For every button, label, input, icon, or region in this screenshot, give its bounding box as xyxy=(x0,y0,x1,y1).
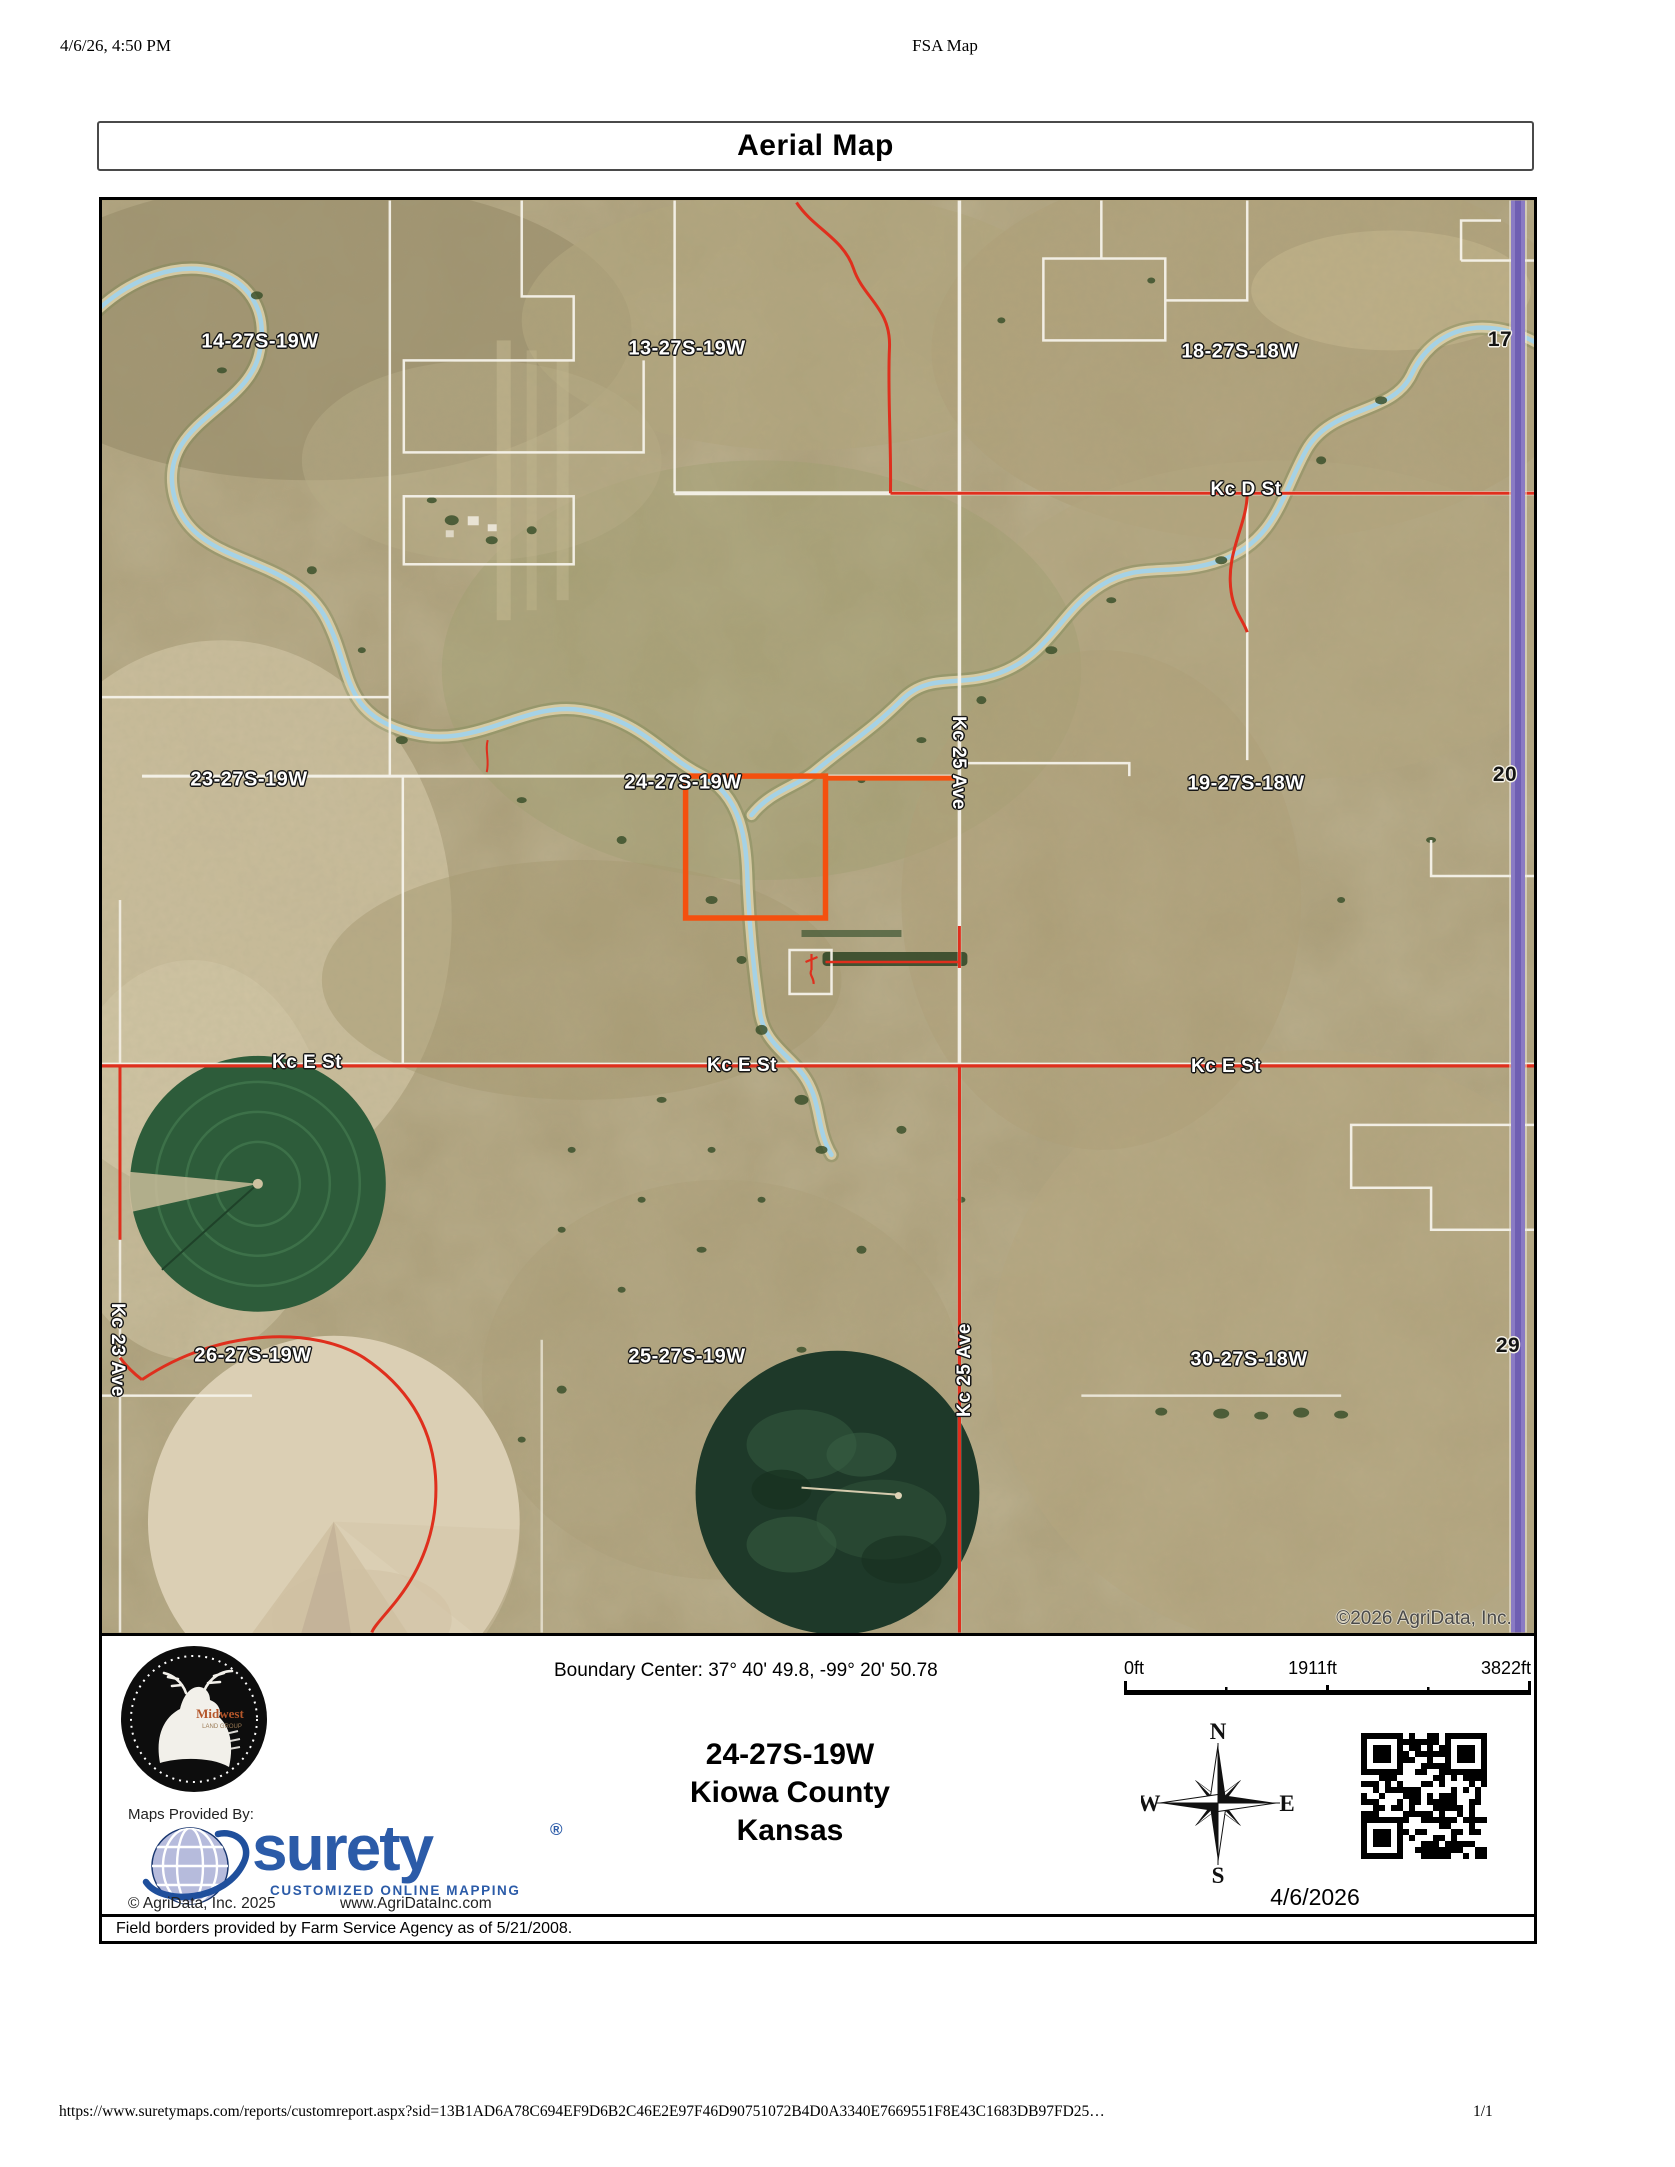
section-label: 13-27S-19W xyxy=(628,338,745,361)
section-number-label: 20 xyxy=(1493,763,1517,787)
road-label: Kc E St xyxy=(1191,1056,1261,1078)
compass-west: W xyxy=(1141,1791,1161,1816)
section-label: 14-27S-19W xyxy=(201,331,318,354)
section-number-label: 17 xyxy=(1488,328,1512,352)
report-title: Aerial Map xyxy=(97,121,1534,171)
aerial-map: 14-27S-19W 13-27S-19W 18-27S-18W 17 Kc D… xyxy=(102,200,1534,1633)
section-label: 18-27S-18W xyxy=(1181,341,1298,364)
report-date: 4/6/2026 xyxy=(1240,1884,1390,1911)
section-label: 25-27S-19W xyxy=(628,1346,745,1369)
midwest-land-group-logo: Midwest LAND GROUP xyxy=(119,1644,269,1794)
road-label-vertical: Kc 25 Ave xyxy=(954,1323,976,1417)
location-plss: 24-27S-19W xyxy=(540,1736,1040,1774)
section-label: 19-27S-18W xyxy=(1187,773,1304,796)
compass-south: S xyxy=(1212,1863,1225,1888)
midwest-logo-name: Midwest xyxy=(196,1706,244,1721)
road-label-vertical: Kc 25 Ave xyxy=(947,716,969,810)
compass-north: N xyxy=(1210,1719,1227,1744)
road-label: Kc D St xyxy=(1210,479,1281,501)
highway-purple xyxy=(1510,201,1526,1633)
location-state: Kansas xyxy=(540,1812,1040,1850)
map-report-frame: 14-27S-19W 13-27S-19W 18-27S-18W 17 Kc D… xyxy=(99,197,1537,1944)
report-title-text: Aerial Map xyxy=(737,129,894,163)
location-block: 24-27S-19W Kiowa County Kansas xyxy=(540,1736,1040,1850)
section-label: 26-27S-19W xyxy=(194,1345,311,1368)
scale-end: 3822ft xyxy=(1481,1658,1531,1679)
field-borders-text: Field borders provided by Farm Service A… xyxy=(116,1920,572,1938)
scale-bar: 0ft 1911ft 3822ft xyxy=(1124,1658,1531,1702)
pivot-circle-dark xyxy=(696,1351,980,1633)
pivot-circle-green xyxy=(129,1056,386,1312)
aerial-imagery xyxy=(102,200,1534,1633)
section-label: 23-27S-19W xyxy=(190,769,307,792)
road-label-vertical: Kc 23 Ave xyxy=(106,1303,128,1397)
print-page-number: 1/1 xyxy=(1473,2103,1493,2121)
agridata-copyright: © AgriData, Inc. 2025 xyxy=(128,1895,276,1913)
scale-mid: 1911ft xyxy=(1288,1658,1337,1679)
road-label: Kc E St xyxy=(272,1052,342,1074)
boundary-center-coordinates: Boundary Center: 37° 40' 49.8, -99° 20' … xyxy=(554,1660,938,1682)
surety-wordmark: surety xyxy=(252,1816,432,1880)
field-borders-note: Field borders provided by Farm Service A… xyxy=(102,1914,1534,1941)
imagery-copyright: ©2026 AgriData, Inc. xyxy=(1336,1608,1512,1630)
qr-code xyxy=(1361,1733,1487,1859)
road-label: Kc E St xyxy=(707,1055,777,1077)
map-info-panel: Boundary Center: 37° 40' 49.8, -99° 20' … xyxy=(102,1633,1534,1914)
print-footer-url: https://www.suretymaps.com/reports/custo… xyxy=(59,2103,1105,2121)
agridata-website: www.AgriDataInc.com xyxy=(340,1895,492,1913)
scale-bar-graphic xyxy=(1124,1681,1531,1697)
section-label: 24-27S-19W xyxy=(624,772,741,795)
section-label: 30-27S-18W xyxy=(1190,1349,1307,1372)
print-doc-title: FSA Map xyxy=(0,36,1675,56)
section-number-label: 29 xyxy=(1496,1334,1520,1358)
surety-registered-mark: ® xyxy=(550,1820,563,1840)
scale-start: 0ft xyxy=(1124,1658,1144,1679)
fsa-map-report-page: { "browser": { "timestamp": "4/6/26, 4:5… xyxy=(0,0,1675,2167)
location-county: Kiowa County xyxy=(540,1774,1040,1812)
midwest-logo-sub: LAND GROUP xyxy=(202,1724,242,1730)
compass-rose: N E S W xyxy=(1141,1719,1295,1891)
compass-east: E xyxy=(1279,1791,1294,1816)
maps-provided-by: Maps Provided By: xyxy=(128,1806,254,1823)
